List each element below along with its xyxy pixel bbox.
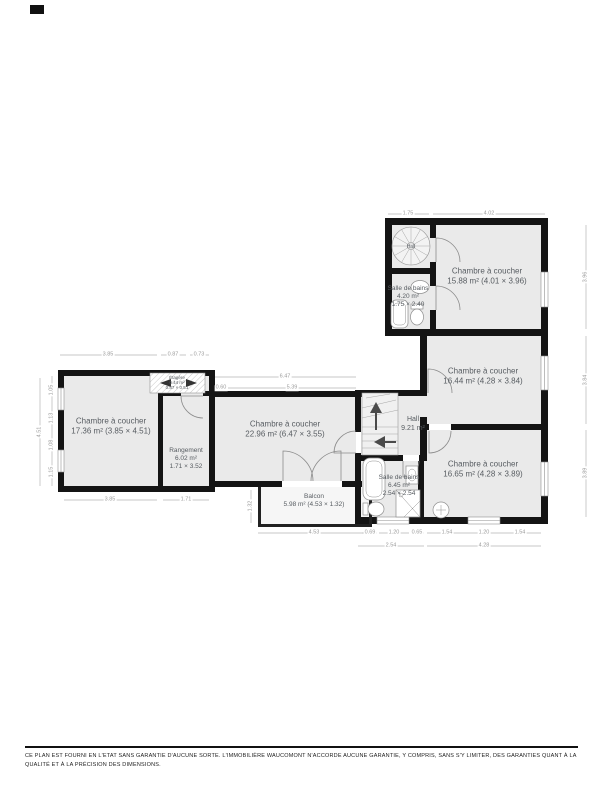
floor-plan-page: Hall Chambre à coucher 15.88 m² (4.01 × … xyxy=(0,0,603,800)
bedroom-sink-icon xyxy=(433,502,449,518)
dim-left-s2: 1.13 xyxy=(49,412,55,425)
dim-tl-closet-b: 0.73 xyxy=(193,352,206,358)
room-label-storage: Rangement 6.02 m² 1.71 × 3.52 xyxy=(169,447,203,471)
disclaimer-text: CE PLAN EST FOURNI EN L'ETAT SANS GARANT… xyxy=(25,752,578,771)
spiral-stair-label: Hall xyxy=(407,244,416,250)
dim-bl-storage: 1.71 xyxy=(180,497,193,503)
room-label-shelf-closet: Étagère 0.44 m² 0.87 × 0.51 xyxy=(166,375,189,391)
dim-bath-b3: 0.65 xyxy=(411,530,424,536)
room-label-bedroom-center: Chambre à coucher 22.96 m² (6.47 × 3.55) xyxy=(245,420,324,441)
dim-center-total: 6.47 xyxy=(279,374,292,380)
dim-right-bottom-total: 3.89 xyxy=(583,467,589,480)
dim-bath-b2: 1.20 xyxy=(388,530,401,536)
room-label-balcony: Balcon 5.98 m² (4.53 × 1.32) xyxy=(284,493,345,509)
dim-left-total: 4.51 xyxy=(37,426,43,439)
dim-center-jog: 0.60 xyxy=(215,385,228,391)
dim-top-stair: 1.75 xyxy=(402,211,415,217)
dim-br-total: 4.28 xyxy=(478,543,491,549)
room-label-hall: Hall 9.21 m² xyxy=(401,415,425,433)
dim-tl-bedroom: 3.85 xyxy=(102,352,115,358)
floor-plan-drawing xyxy=(0,0,603,800)
dim-tl-closet-a: 0.87 xyxy=(167,352,180,358)
room-label-bedroom-top-right: Chambre à coucher 15.88 m² (4.01 × 3.96) xyxy=(447,267,526,288)
dim-bath-total: 2.54 xyxy=(385,543,398,549)
dim-left-s3: 1.08 xyxy=(49,439,55,452)
dim-balcony-width: 4.53 xyxy=(308,530,321,536)
dim-br-b2: 1.20 xyxy=(478,530,491,536)
dim-right-mid-total: 3.84 xyxy=(583,374,589,387)
dim-br-b1: 1.54 xyxy=(441,530,454,536)
dim-br-b3: 1.54 xyxy=(514,530,527,536)
dim-left-s1: 1.05 xyxy=(49,384,55,397)
dim-balcony-depth: 1.32 xyxy=(248,500,254,513)
footer-divider xyxy=(25,746,578,748)
dim-bath-b1: 0.69 xyxy=(364,530,377,536)
room-label-bedroom-mid-right: Chambre à coucher 16.44 m² (4.28 × 3.84) xyxy=(443,367,522,388)
dim-center-inner: 5.39 xyxy=(286,385,299,391)
dim-bl-bedroom: 3.85 xyxy=(104,497,117,503)
dim-right-top-total: 3.96 xyxy=(583,271,589,284)
room-label-bathroom-bottom: Salle de bains 6.45 m² 2.54 × 2.54 xyxy=(379,474,420,498)
room-label-bedroom-bottom-right: Chambre à coucher 16.65 m² (4.28 × 3.89) xyxy=(443,460,522,481)
dim-left-s4: 1.15 xyxy=(49,466,55,479)
toilet-icon xyxy=(363,503,368,515)
staircase-icon xyxy=(362,393,398,455)
dim-top-bedroom: 4.02 xyxy=(483,211,496,217)
room-label-bedroom-left: Chambre à coucher 17.36 m² (3.85 × 4.51) xyxy=(71,417,150,438)
room-label-bathroom-top: Salle de bains 4.20 m² 1.75 × 2.40 xyxy=(388,285,429,309)
